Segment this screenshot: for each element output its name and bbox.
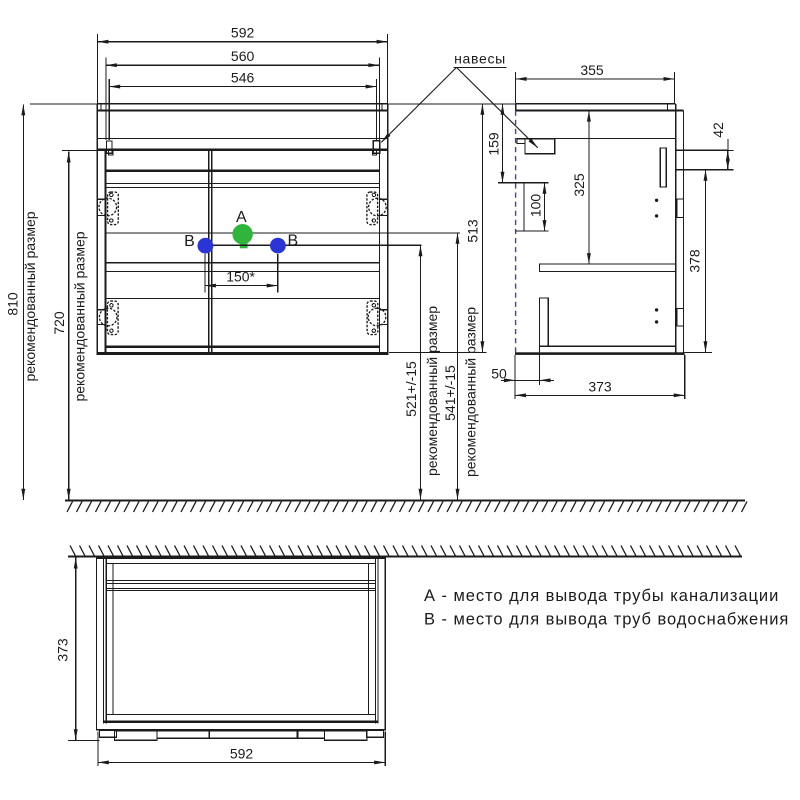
svg-text:378: 378: [687, 249, 703, 273]
svg-text:592: 592: [231, 25, 255, 41]
svg-text:150*: 150*: [226, 269, 255, 285]
svg-text:720: 720: [51, 311, 67, 335]
svg-text:810: 810: [5, 292, 21, 316]
svg-text:325: 325: [571, 173, 587, 197]
svg-text:В - место для вывода труб водо: В - место для вывода труб водоснабжения: [424, 610, 789, 628]
svg-text:B: B: [287, 233, 298, 250]
svg-text:513: 513: [465, 219, 481, 243]
svg-text:А - место для вывода трубы кан: А - место для вывода трубы канализации: [424, 587, 779, 605]
svg-text:рекомендованный размер: рекомендованный размер: [424, 306, 440, 476]
svg-text:навесы: навесы: [454, 51, 506, 67]
svg-text:50: 50: [491, 365, 507, 381]
svg-text:A: A: [236, 209, 247, 226]
svg-text:159: 159: [486, 132, 502, 156]
svg-text:B: B: [184, 233, 195, 250]
svg-text:100: 100: [528, 194, 544, 218]
svg-text:541+/-15: 541+/-15: [442, 365, 458, 421]
svg-text:рекомендованный размер: рекомендованный размер: [463, 307, 479, 477]
svg-text:560: 560: [231, 48, 255, 64]
svg-text:42: 42: [710, 122, 726, 138]
svg-text:рекомендованный размер: рекомендованный размер: [22, 211, 38, 381]
svg-text:373: 373: [588, 379, 612, 395]
svg-text:592: 592: [230, 745, 254, 761]
svg-text:546: 546: [231, 70, 255, 86]
svg-text:355: 355: [580, 62, 604, 78]
svg-text:521+/-15: 521+/-15: [403, 361, 419, 417]
svg-text:рекомендованный размер: рекомендованный размер: [72, 231, 88, 401]
svg-text:373: 373: [55, 638, 71, 662]
